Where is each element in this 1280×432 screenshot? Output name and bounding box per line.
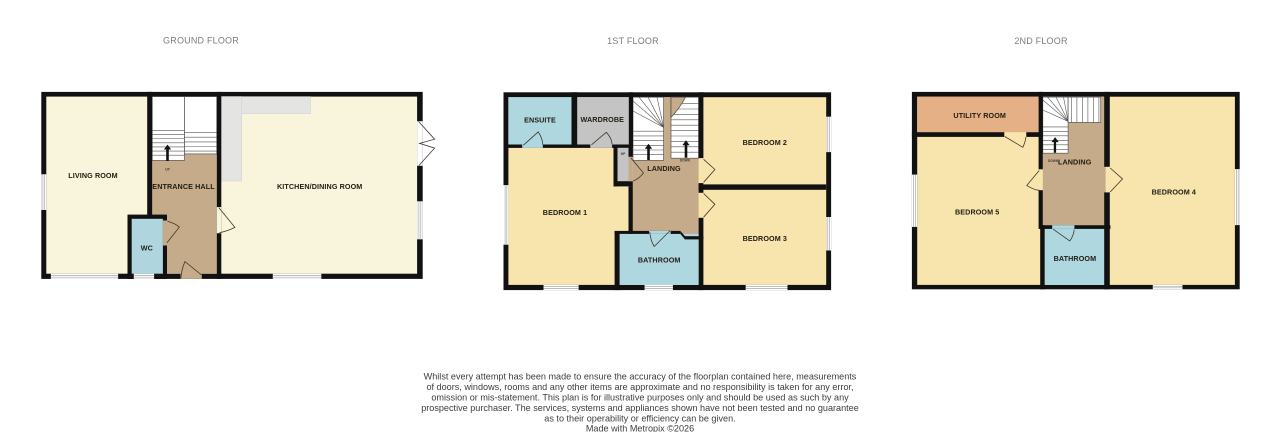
svg-text:2ND FLOOR: 2ND FLOOR <box>1014 36 1068 46</box>
svg-text:WARDROBE: WARDROBE <box>581 115 625 124</box>
svg-text:1ST FLOOR: 1ST FLOOR <box>607 36 659 46</box>
svg-text:of doors, windows, rooms and a: of doors, windows, rooms and any other i… <box>426 382 853 392</box>
svg-text:LIVING ROOM: LIVING ROOM <box>68 171 117 180</box>
svg-text:BEDROOM 1: BEDROOM 1 <box>543 208 587 217</box>
svg-text:omission or mis-statement. Thi: omission or mis-statement. This plan is … <box>431 392 849 402</box>
svg-text:UTILITY ROOM: UTILITY ROOM <box>953 111 1006 120</box>
svg-text:ENSUITE: ENSUITE <box>524 116 556 125</box>
svg-text:BEDROOM 3: BEDROOM 3 <box>743 234 787 243</box>
svg-text:BATHROOM: BATHROOM <box>638 256 681 265</box>
svg-text:Made with Metropix ©2026: Made with Metropix ©2026 <box>586 424 694 432</box>
svg-text:as to their operability or eff: as to their operability or efficiency ca… <box>544 413 735 423</box>
svg-text:Whilst every attempt has been: Whilst every attempt has been made to en… <box>424 372 857 382</box>
svg-text:prospective purchaser. The ser: prospective purchaser. The services, sys… <box>421 403 859 413</box>
svg-text:ENTRANCE HALL: ENTRANCE HALL <box>152 182 215 191</box>
svg-text:BEDROOM 2: BEDROOM 2 <box>743 138 787 147</box>
svg-text:BATHROOM: BATHROOM <box>1054 254 1097 263</box>
svg-text:BEDROOM 4: BEDROOM 4 <box>1152 188 1196 197</box>
svg-text:GROUND FLOOR: GROUND FLOOR <box>163 36 239 46</box>
svg-text:DOWN: DOWN <box>680 159 691 163</box>
svg-text:KITCHEN/DINING ROOM: KITCHEN/DINING ROOM <box>277 182 362 191</box>
svg-text:WC: WC <box>141 243 153 252</box>
svg-text:LANDING: LANDING <box>647 164 681 173</box>
svg-text:BEDROOM 5: BEDROOM 5 <box>955 208 999 217</box>
svg-text:LANDING: LANDING <box>1058 158 1092 167</box>
